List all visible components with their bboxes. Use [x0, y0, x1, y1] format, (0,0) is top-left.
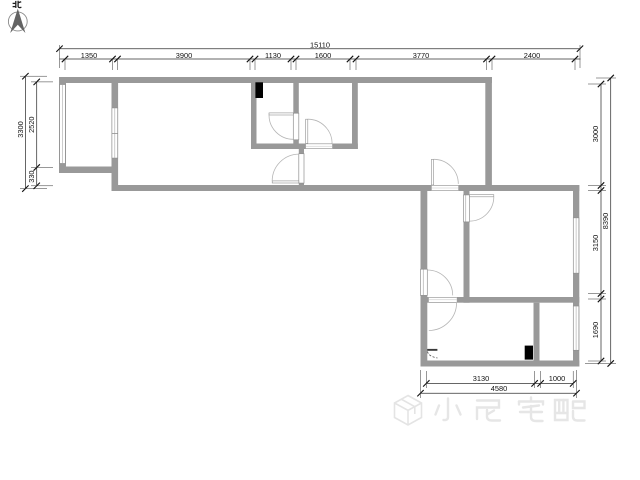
svg-text:3900: 3900: [176, 51, 192, 60]
svg-text:2400: 2400: [524, 51, 540, 60]
svg-text:15110: 15110: [310, 41, 330, 50]
svg-text:3130: 3130: [473, 374, 489, 383]
svg-text:1350: 1350: [81, 51, 97, 60]
svg-text:8390: 8390: [601, 213, 610, 229]
svg-text:1690: 1690: [591, 322, 600, 338]
svg-text:3150: 3150: [591, 235, 600, 251]
svg-text:1000: 1000: [549, 374, 565, 383]
svg-text:330: 330: [27, 170, 36, 182]
svg-text:3000: 3000: [591, 126, 600, 142]
svg-text:2520: 2520: [27, 116, 36, 132]
svg-text:3300: 3300: [16, 121, 25, 137]
svg-text:1130: 1130: [265, 51, 281, 60]
svg-text:3770: 3770: [413, 51, 429, 60]
svg-text:1600: 1600: [315, 51, 331, 60]
svg-text:4580: 4580: [491, 384, 507, 393]
